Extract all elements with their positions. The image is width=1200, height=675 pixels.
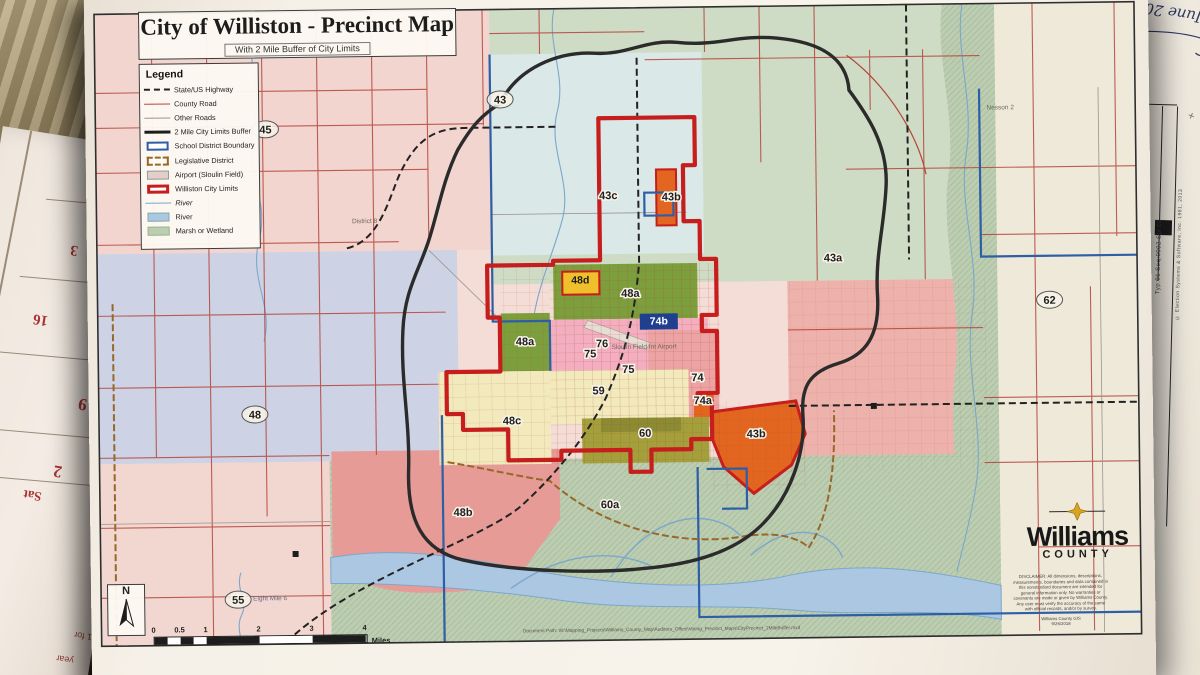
svg-text:43b: 43b (662, 191, 681, 203)
calendar-number: 9 (77, 394, 89, 415)
place-label-airport: Sloulin Field Int Airport (612, 343, 677, 351)
legend-label: Marsh or Wetland (176, 226, 234, 236)
legend-swatch (146, 226, 172, 236)
svg-text:74a: 74a (694, 395, 713, 407)
north-label: N (108, 585, 144, 598)
scale-segment (207, 636, 260, 644)
calendar-number: 2 (52, 460, 64, 481)
svg-text:48a: 48a (621, 288, 640, 300)
legend-label: State/US Highway (174, 84, 233, 94)
precinct-label-74b: 74b (650, 315, 668, 327)
svg-text:62: 62 (1043, 295, 1055, 307)
legend-label: School District Boundary (175, 141, 255, 151)
svg-text:74b: 74b (650, 315, 668, 327)
scale-tick: 3 (309, 624, 313, 633)
legend-item-4: School District Boundary (145, 138, 255, 154)
svg-text:43c: 43c (599, 190, 618, 202)
legend-label: Williston City Limits (175, 184, 238, 194)
scale-tick: 0.5 (174, 625, 185, 634)
precinct-label-48a-upper: 48a (621, 288, 640, 300)
scale-tick: 0 (151, 626, 155, 635)
place-label-nesson-2: Nesson 2 (986, 104, 1014, 111)
svg-text:60: 60 (639, 428, 651, 440)
calendar-grid-line (0, 131, 32, 675)
legend-label: County Road (174, 99, 217, 109)
map-sheet: 434548556243c43b43a48d48a48a74b767575745… (84, 0, 1156, 675)
calendar-footer-text: 1 for (73, 630, 92, 643)
scale-segment (194, 637, 207, 644)
precinct-label-74: 74 (691, 372, 704, 384)
precinct-label-74a: 74a (694, 395, 713, 407)
svg-text:48: 48 (249, 409, 261, 421)
page-title: City of Williston - Precinct Map (139, 11, 455, 41)
precinct-label-59: 59 (592, 385, 604, 397)
disclaimer: DISCLAIMER: All dimensions, descriptions… (1013, 574, 1109, 628)
svg-text:48b: 48b (454, 507, 473, 519)
desk-photo: 31692Sat 29 30 31 22 23 24 15 16 17 8 9 … (0, 0, 1200, 675)
legend-swatch (144, 99, 170, 109)
legend: Legend State/US HighwayCounty RoadOther … (139, 62, 261, 249)
scale-tick: 1 (203, 625, 207, 634)
map-date: 9/26/2018 (1014, 622, 1109, 629)
precinct-label-43c: 43c (599, 190, 618, 202)
legend-swatch (144, 85, 170, 95)
county-logo: Williams COUNTY (1002, 502, 1153, 562)
precinct-label-60a: 60a (601, 499, 620, 511)
scale-unit: Miles (372, 636, 391, 645)
scale-tick: 2 (256, 624, 260, 633)
calendar-number: 16 (32, 309, 49, 328)
svg-text:43: 43 (494, 94, 506, 106)
precinct-label-62: 62 (1036, 291, 1062, 308)
legend-label: Airport (Sloulin Field) (175, 169, 243, 179)
legend-item-8: River (145, 195, 255, 211)
scale-segment (181, 637, 194, 644)
legend-swatch (145, 184, 171, 194)
svg-text:55: 55 (232, 595, 244, 607)
logo-subtitle: COUNTY (1003, 548, 1153, 562)
svg-text:75: 75 (584, 348, 596, 360)
svg-text:60a: 60a (601, 499, 620, 511)
svg-text:59: 59 (592, 385, 604, 397)
logo-name: Williams (1002, 525, 1152, 549)
legend-item-0: State/US Highway (144, 81, 254, 97)
compass-star-icon (1047, 502, 1107, 521)
precinct-label-48b: 48b (454, 507, 473, 519)
legend-label: 2 Mile City Limits Buffer (174, 127, 251, 137)
precinct-label-48: 48 (242, 406, 268, 423)
legend-item-9: River (145, 209, 255, 225)
legend-label: Other Roads (174, 113, 215, 123)
legend-swatch (144, 127, 170, 137)
legend-item-5: Legislative District (145, 152, 255, 168)
svg-text:48a: 48a (516, 336, 535, 348)
ballot-seq-text: Typ:01 Seq:0002 Spl:02 (1155, 124, 1165, 294)
legend-item-7: Williston City Limits (145, 181, 255, 197)
scale-segment (313, 635, 366, 643)
precinct-label-60: 60 (639, 428, 651, 440)
precinct-label-43b-top: 43b (662, 191, 681, 203)
legend-swatch (145, 170, 171, 180)
svg-text:48d: 48d (571, 274, 589, 286)
legend-label: River (175, 198, 192, 207)
legend-label: River (175, 212, 192, 221)
precinct-label-76: 76 (596, 338, 608, 350)
scale-segment (155, 638, 168, 645)
svg-text:76: 76 (596, 338, 608, 350)
legend-item-2: Other Roads (144, 110, 254, 126)
legend-swatch (145, 198, 171, 208)
svg-text:74: 74 (691, 372, 704, 384)
legend-item-6: Airport (Sloulin Field) (145, 167, 255, 183)
svg-text:43b: 43b (747, 428, 766, 440)
scale-bar: 00.51234 Miles (153, 623, 413, 652)
scale-segment (168, 637, 181, 644)
title-box: City of Williston - Precinct Map With 2 … (138, 8, 457, 60)
north-arrow-icon (115, 598, 137, 628)
precinct-label-43a: 43a (824, 252, 843, 264)
page-subtitle: With 2 Mile Buffer of City Limits (224, 42, 371, 57)
svg-text:48c: 48c (503, 415, 522, 427)
calendar-footer-text: year (56, 653, 75, 666)
svg-text:43a: 43a (824, 252, 843, 264)
precinct-label-43: 43 (487, 91, 513, 108)
registration-cross: + (1186, 108, 1198, 124)
legend-label: Legislative District (175, 155, 234, 165)
calendar-number: Sat (22, 486, 42, 505)
scale-segment (260, 636, 313, 644)
legend-swatch (145, 141, 171, 151)
precinct-label-75-b: 75 (622, 364, 634, 376)
legend-title: Legend (146, 67, 254, 80)
calendar-number: 3 (69, 240, 79, 258)
precinct-label-75-a: 75 (584, 348, 596, 360)
place-label-eight-mile: Eight Mile 6 (253, 595, 287, 602)
precinct-label-48c: 48c (503, 415, 522, 427)
legend-swatch (145, 156, 171, 166)
precinct-label-43b-east: 43b (747, 428, 766, 440)
legend-item-10: Marsh or Wetland (146, 223, 256, 239)
svg-text:75: 75 (622, 364, 634, 376)
legend-swatch (145, 212, 171, 222)
north-arrow: N (107, 584, 146, 636)
legend-swatch (144, 113, 170, 123)
place-label-district-8: District 8 (352, 218, 378, 225)
legend-item-3: 2 Mile City Limits Buffer (144, 124, 254, 140)
svg-text:45: 45 (259, 124, 271, 136)
disclaimer-text: DISCLAIMER: All dimensions, descriptions… (1013, 574, 1108, 612)
precinct-label-48d: 48d (571, 274, 589, 286)
legend-item-1: County Road (144, 96, 254, 112)
precinct-label-48a-west: 48a (516, 336, 535, 348)
scale-tick: 4 (362, 623, 366, 632)
precinct-label-55: 55 (225, 591, 251, 608)
